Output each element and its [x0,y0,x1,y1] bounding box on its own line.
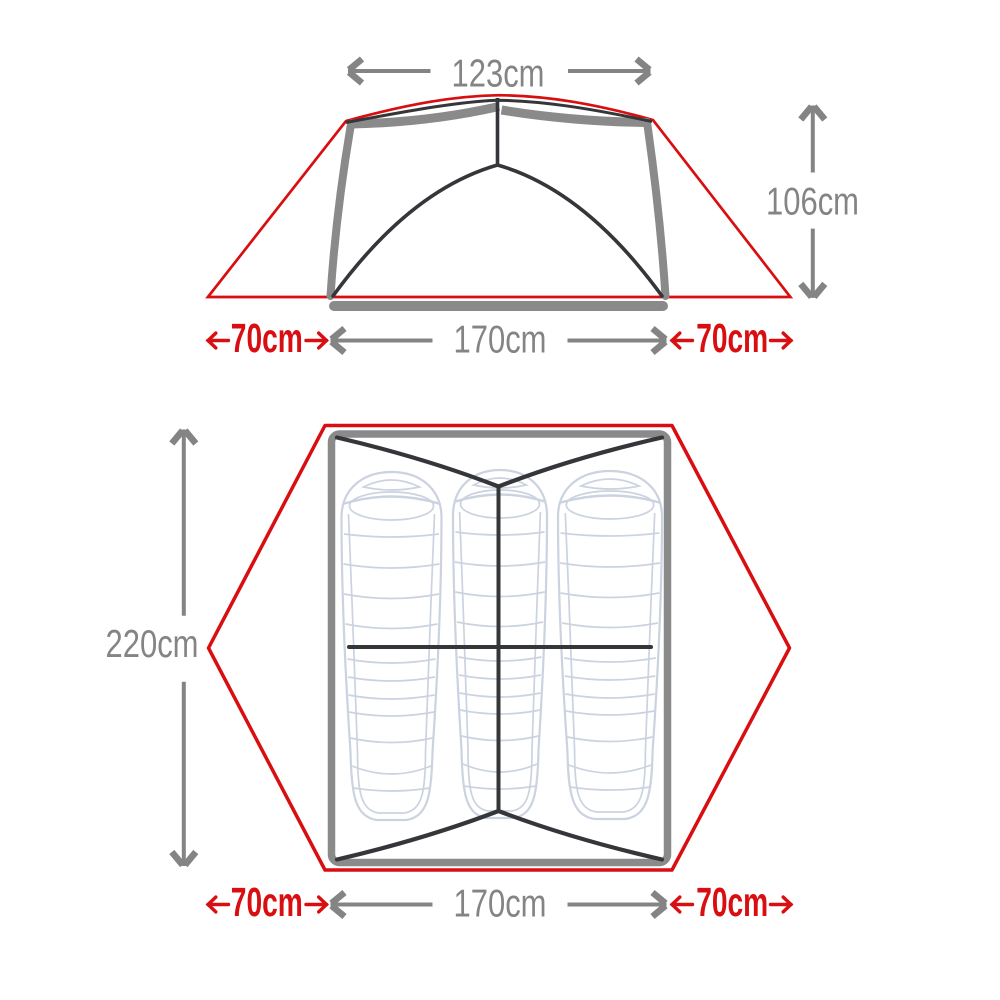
svg-text:70cm: 70cm [231,879,303,925]
svg-text:123cm: 123cm [452,53,545,96]
svg-text:220cm: 220cm [106,623,199,666]
svg-text:70cm: 70cm [231,315,303,361]
svg-text:70cm: 70cm [696,879,768,925]
svg-text:70cm: 70cm [696,315,768,361]
svg-text:170cm: 170cm [454,319,547,362]
svg-text:106cm: 106cm [766,181,859,224]
svg-text:170cm: 170cm [454,883,547,926]
